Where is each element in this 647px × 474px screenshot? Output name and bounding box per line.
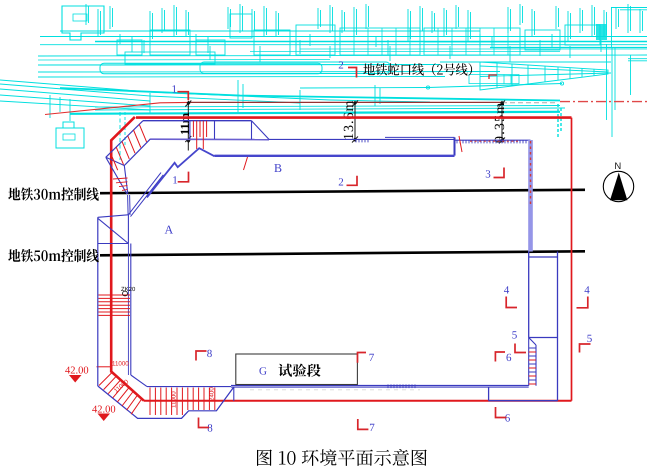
svg-text:3: 3 [485,169,491,181]
svg-text:11000: 11000 [112,361,129,368]
svg-text:N: N [614,161,621,172]
svg-text:5: 5 [512,330,518,342]
svg-text:2400: 2400 [209,387,216,401]
svg-text:7: 7 [369,422,375,434]
svg-text:8: 8 [207,423,213,435]
svg-text:9.35m: 9.35m [493,102,508,143]
svg-text:2: 2 [338,176,344,188]
svg-text:2: 2 [338,60,344,72]
svg-text:13.6m: 13.6m [342,100,357,140]
svg-text:G: G [259,366,267,378]
svg-text:6: 6 [505,413,511,425]
svg-text:A: A [165,223,174,237]
svg-text:1: 1 [172,84,178,96]
svg-text:4: 4 [504,285,510,297]
svg-text:B: B [274,161,282,175]
svg-text:1: 1 [172,175,178,187]
svg-text:42.00: 42.00 [65,366,89,377]
svg-text:11000: 11000 [171,391,178,408]
svg-text:7: 7 [369,352,375,364]
svg-text:8: 8 [207,348,213,360]
svg-text:6: 6 [506,352,512,364]
svg-text:4: 4 [584,285,590,297]
